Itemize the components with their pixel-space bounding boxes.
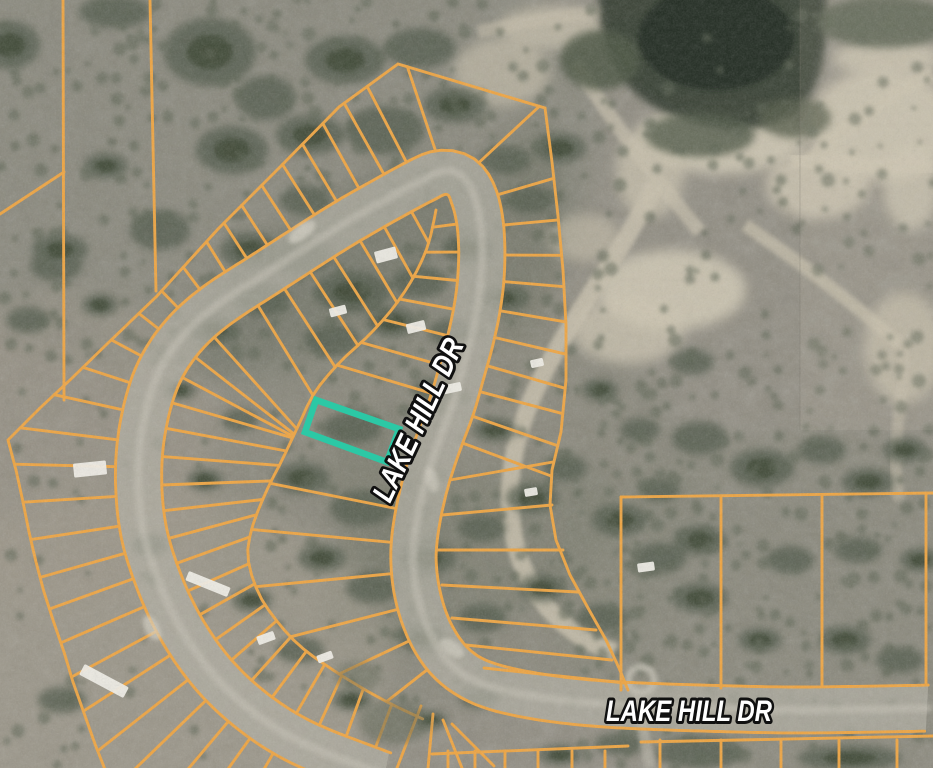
svg-text:LAKE HILL DR: LAKE HILL DR (606, 695, 772, 728)
